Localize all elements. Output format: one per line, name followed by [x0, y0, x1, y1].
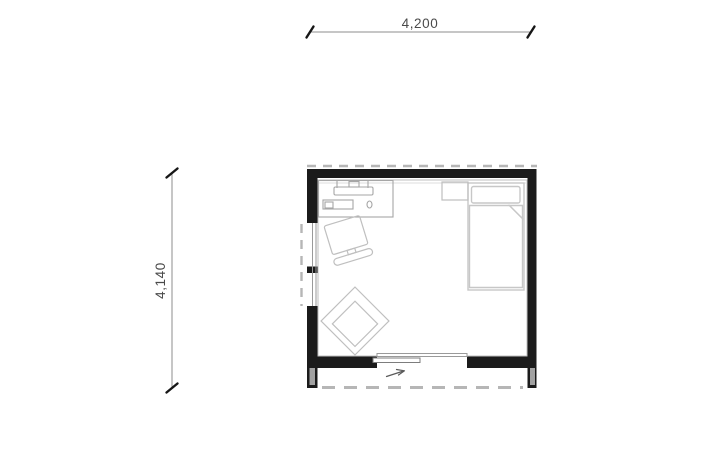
sliding-door-panel: [373, 358, 420, 363]
bottom-wall-right: [467, 356, 537, 368]
desk-chair-backrest: [333, 248, 373, 266]
right-wall: [528, 169, 537, 388]
mouse: [367, 201, 372, 208]
door-direction-arrow: [387, 370, 405, 377]
porch-pier-left-fill: [310, 368, 316, 385]
left-wall-upper: [307, 169, 318, 223]
porch-deck: [310, 368, 536, 388]
dimension-top-label: 4,200: [402, 16, 439, 31]
dimension-left-label: 4,140: [153, 262, 168, 299]
blanket: [470, 206, 523, 288]
left-window: [302, 223, 317, 306]
desk-area: [319, 181, 394, 218]
monitor: [334, 187, 373, 195]
nightstand: [442, 182, 468, 200]
dimension-top: 4,200: [307, 16, 535, 38]
armchair-frame: [321, 287, 389, 355]
floor-plan-page: 4,200 4,140: [0, 0, 720, 450]
sliding-door-track: [377, 354, 467, 357]
desk: [319, 181, 394, 218]
desk-chair: [323, 215, 373, 266]
monitor-stand: [349, 182, 359, 188]
desk-chair-seat: [324, 215, 368, 255]
floor-plan-canvas: 4,200 4,140: [0, 0, 720, 450]
top-wall: [307, 169, 537, 178]
keyboard-numpad: [325, 202, 333, 208]
porch-pier-right-fill: [530, 368, 535, 385]
bed: [468, 183, 524, 290]
sliding-door: [373, 354, 467, 363]
pillow: [472, 187, 521, 204]
armchair: [321, 287, 389, 355]
bottom-wall-left: [307, 356, 377, 368]
dimension-left: 4,140: [153, 169, 178, 393]
